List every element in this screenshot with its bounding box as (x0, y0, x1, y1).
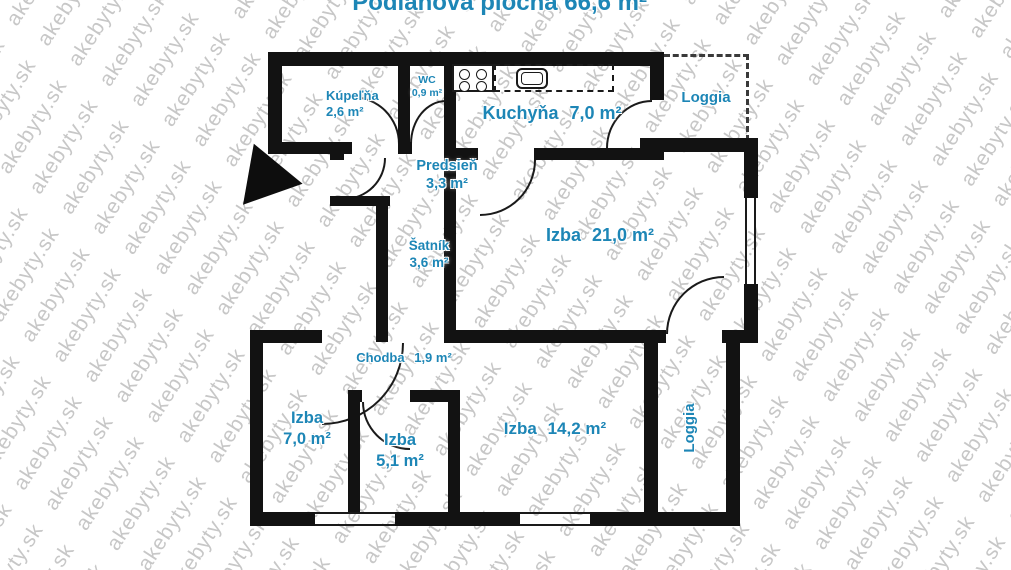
entrance-arrow-icon (243, 144, 308, 215)
room-name: Loggia (681, 403, 698, 452)
wall-bottom-seg3 (590, 512, 740, 526)
wall-left-upper (268, 52, 282, 154)
wall-mid-right (722, 330, 758, 343)
wall-satnik-left (376, 200, 388, 342)
room-label-chodba: Chodba 1,9 m² (338, 350, 470, 366)
room-label-izba7: Izba 7,0 m² (260, 408, 354, 449)
room-name: Izba (352, 430, 448, 451)
room-name: Loggia (681, 89, 730, 106)
window-right-line2 (754, 198, 756, 284)
room-area: 2,6 m² (326, 104, 410, 120)
floorplan-canvas: akebyty.sk akebyty.sk akebyty.sk akebyty… (0, 0, 1011, 570)
room-name: Šatník (388, 238, 470, 255)
wall-right-upper (744, 138, 758, 198)
wall-loggia-bottom-right (726, 343, 740, 513)
room-area: 5,1 m² (352, 451, 448, 472)
room-area: 3,6 m² (388, 255, 470, 272)
wall-mid-center (444, 330, 666, 343)
room-label-loggia-top: Loggia (664, 89, 748, 108)
room-name: Kuchyňa (482, 103, 558, 123)
window-bottom1-line2 (315, 524, 395, 526)
room-area: 7,0 m² (260, 429, 354, 450)
stove-icon (452, 64, 494, 92)
room-area: 3,3 m² (382, 175, 512, 193)
room-name: Izba (546, 225, 581, 245)
window-bottom2-line1 (520, 512, 590, 514)
window-right-line1 (745, 198, 747, 284)
room-name: WC (404, 74, 450, 87)
stove-burner-icon (476, 81, 487, 92)
wall-chodba-south-left (348, 390, 362, 402)
room-name: Predsieň (382, 157, 512, 175)
wall-izba5-izba14-divider (448, 390, 460, 512)
room-label-wc: WC 0,9 m² (404, 74, 450, 100)
wall-bottom-seg2 (395, 512, 520, 526)
room-name: Izba (504, 419, 537, 438)
room-area: 1,9 m² (414, 350, 452, 365)
room-area: 7,0 m² (570, 103, 622, 123)
room-label-predsien: Predsieň 3,3 m² (382, 157, 512, 193)
sink-basin (521, 72, 543, 85)
stove-burner-icon (459, 69, 470, 80)
wall-kitchen-loggia-divider (650, 52, 664, 100)
room-name: Chodba (356, 350, 404, 365)
kitchen-counter (494, 64, 614, 92)
room-label-kupelna: Kúpeľňa 2,6 m² (326, 88, 410, 121)
room-label-izba21: Izba 21,0 m² (495, 224, 705, 247)
page-title: Podlahová plocha 66,6 m² (352, 0, 647, 17)
window-bottom1-line1 (315, 512, 395, 514)
stove-burner-icon (476, 69, 487, 80)
room-name: Kúpeľňa (326, 88, 410, 104)
room-area: 14,2 m² (548, 419, 607, 438)
room-label-kuchyna: Kuchyňa 7,0 m² (462, 102, 642, 125)
room-label-izba5: Izba 5,1 m² (352, 430, 448, 471)
wall-entrance-stub-top (330, 142, 344, 160)
wall-bottom-seg1 (250, 512, 315, 526)
stove-burner-icon (459, 81, 470, 92)
room-area: 21,0 m² (592, 225, 654, 245)
room-area: 0,9 m² (404, 87, 450, 100)
wall-stub-wc (398, 142, 412, 154)
room-name: Izba (260, 408, 354, 429)
room-label-loggia-bottom: Loggia (681, 382, 709, 474)
wall-right-lower (744, 284, 758, 334)
window-bottom2-line2 (520, 524, 590, 526)
room-label-izba14: Izba 14,2 m² (450, 418, 660, 439)
room-label-satnik: Šatník 3,6 m² (388, 238, 470, 272)
